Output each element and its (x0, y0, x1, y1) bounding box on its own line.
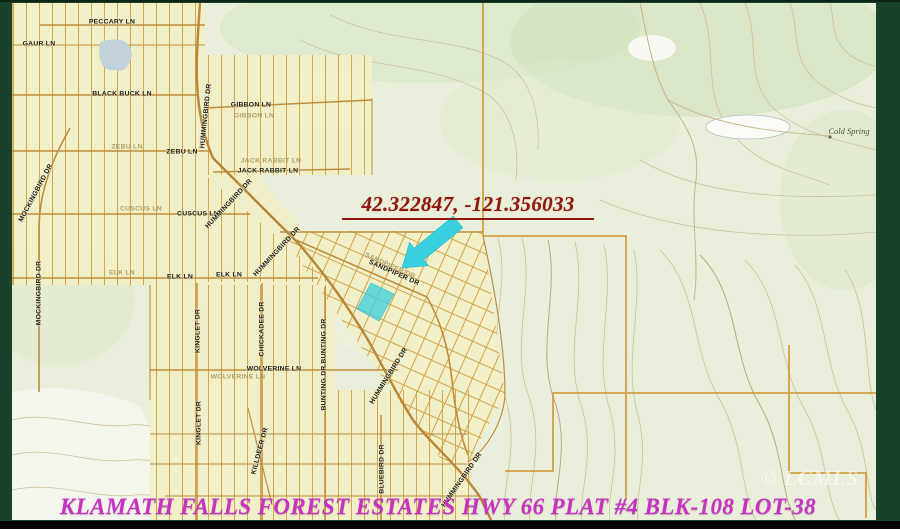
small-pond (99, 39, 132, 70)
street-label: JACK RABBIT LN (238, 168, 299, 175)
top-border-line (0, 0, 900, 2)
street-label: ZEBU LN (111, 144, 142, 151)
coordinates-annotation: 42.322847, -121.356033 (342, 192, 594, 220)
street-label: JACK RABBIT LN (241, 158, 302, 165)
street-label: PECCARY LN (89, 19, 135, 26)
street-label: WOLVERINE LN (247, 366, 302, 373)
street-label: KINGLET DR (195, 309, 202, 353)
street-label: ZEBU LN (166, 149, 197, 156)
street-label: BLUEBIRD DR (379, 444, 386, 494)
street-label: BLACK BUCK LN (92, 91, 152, 98)
street-label: Cold Spring (828, 126, 869, 136)
street-label: MOCKINGBIRD DR (36, 261, 43, 326)
street-label: KINGLET DR (196, 401, 203, 445)
street-label: CUSCUS LN (120, 206, 162, 213)
street-label: ELK LN (216, 272, 242, 279)
bottom-border-band (0, 521, 900, 529)
mls-watermark: © LCMLS (735, 466, 885, 491)
street-label: BUNTING DR (321, 318, 328, 363)
street-label: CHICKADEE DR (259, 301, 266, 356)
street-label: BUNTING DR (321, 365, 328, 410)
map-canvas[interactable]: PECCARY LNGAUR LNBLACK BUCK LNZEBU LNZEB… (12, 3, 876, 520)
street-label: WOLVERINE LN (211, 374, 266, 381)
street-label: ELK LN (109, 270, 135, 277)
street-label: GIBBON LN (234, 113, 274, 120)
listing-caption: KLAMATH FALLS FOREST ESTATES HWY 66 PLAT… (12, 494, 864, 520)
street-label: ELK LN (167, 274, 193, 281)
listing-map-screenshot: PECCARY LNGAUR LNBLACK BUCK LNZEBU LNZEB… (0, 0, 900, 529)
topo-plat-map (12, 3, 876, 520)
street-label: GIBBON LN (231, 102, 271, 109)
street-label: GAUR LN (23, 41, 56, 48)
